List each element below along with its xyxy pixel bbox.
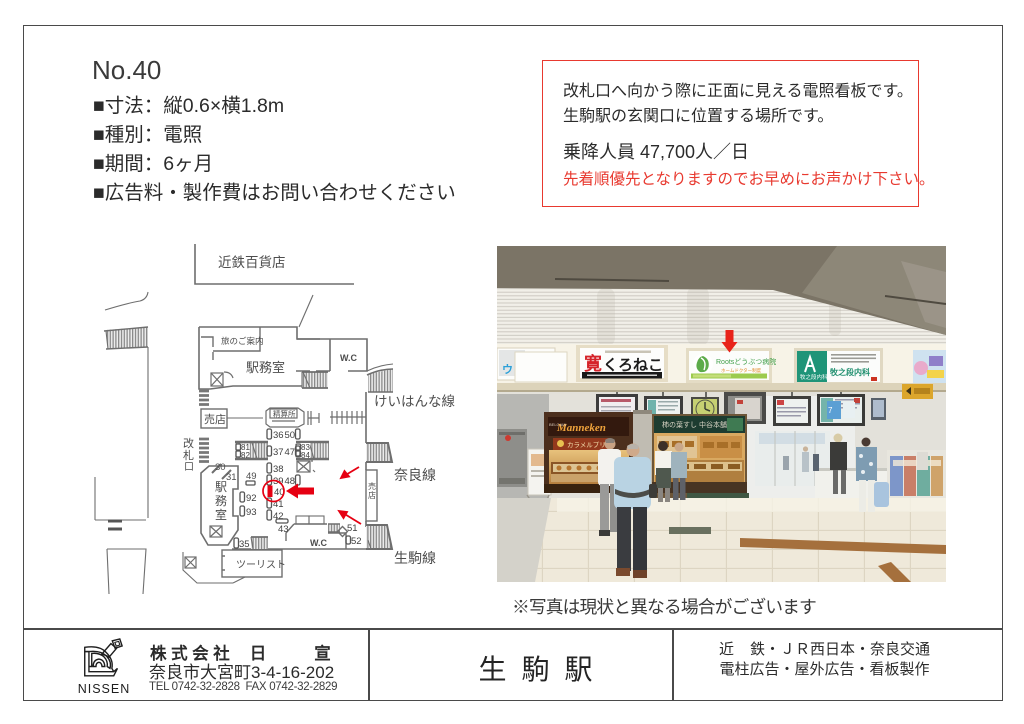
svg-text:82: 82 bbox=[241, 451, 250, 460]
svg-text:店: 店 bbox=[368, 490, 376, 500]
svg-text:柿の葉すし 中谷本舗: 柿の葉すし 中谷本舗 bbox=[662, 420, 727, 429]
svg-text:84: 84 bbox=[301, 451, 310, 460]
svg-text:務: 務 bbox=[215, 494, 227, 508]
svg-text:生駒線: 生駒線 bbox=[394, 550, 436, 566]
svg-text:50: 50 bbox=[285, 430, 296, 441]
svg-text:42: 42 bbox=[273, 511, 284, 522]
svg-text:36: 36 bbox=[273, 430, 284, 441]
svg-text:52: 52 bbox=[351, 536, 362, 547]
svg-text:寛: 寛 bbox=[584, 353, 602, 374]
svg-text:改: 改 bbox=[183, 436, 194, 450]
svg-text:31: 31 bbox=[226, 472, 237, 483]
svg-text:W.C: W.C bbox=[340, 353, 357, 363]
svg-text:92: 92 bbox=[246, 493, 257, 504]
svg-text:38: 38 bbox=[273, 464, 284, 475]
svg-text:47: 47 bbox=[285, 447, 296, 458]
svg-text:ツーリスト: ツーリスト bbox=[236, 560, 286, 571]
svg-text:近鉄百貨店: 近鉄百貨店 bbox=[218, 254, 286, 270]
svg-text:7: 7 bbox=[828, 406, 833, 415]
svg-text:43: 43 bbox=[278, 524, 289, 535]
svg-text:精算所: 精算所 bbox=[273, 409, 296, 419]
svg-text:BELGIAN: BELGIAN bbox=[549, 422, 566, 427]
svg-text:51: 51 bbox=[347, 523, 358, 534]
svg-text:札: 札 bbox=[183, 449, 194, 462]
svg-text:売: 売 bbox=[368, 481, 376, 491]
svg-text:Rootsどうぶつ病院: Rootsどうぶつ病院 bbox=[716, 357, 776, 366]
svg-text:W.C: W.C bbox=[310, 538, 327, 548]
svg-text:35: 35 bbox=[239, 539, 250, 550]
svg-text:48: 48 bbox=[285, 476, 296, 487]
svg-text:駅務室: 駅務室 bbox=[246, 360, 285, 375]
svg-text:93: 93 bbox=[246, 507, 257, 518]
svg-text:口: 口 bbox=[184, 462, 194, 473]
svg-text:ウ: ウ bbox=[502, 363, 513, 376]
svg-text:牧之段内科: 牧之段内科 bbox=[830, 367, 870, 377]
svg-text:室: 室 bbox=[215, 507, 227, 522]
svg-text:けいはんな線: けいはんな線 bbox=[374, 394, 455, 409]
svg-text:牧之段内科: 牧之段内科 bbox=[800, 373, 828, 381]
svg-text:奈良線: 奈良線 bbox=[394, 467, 436, 483]
svg-text:売店: 売店 bbox=[204, 412, 226, 426]
svg-text:30: 30 bbox=[215, 462, 226, 473]
svg-text:37: 37 bbox=[273, 447, 284, 458]
svg-text:旅のご案内: 旅のご案内 bbox=[221, 336, 264, 346]
svg-text:ホームドクター制度: ホームドクター制度 bbox=[721, 367, 762, 374]
svg-text:くろねこ: くろねこ bbox=[603, 357, 663, 374]
